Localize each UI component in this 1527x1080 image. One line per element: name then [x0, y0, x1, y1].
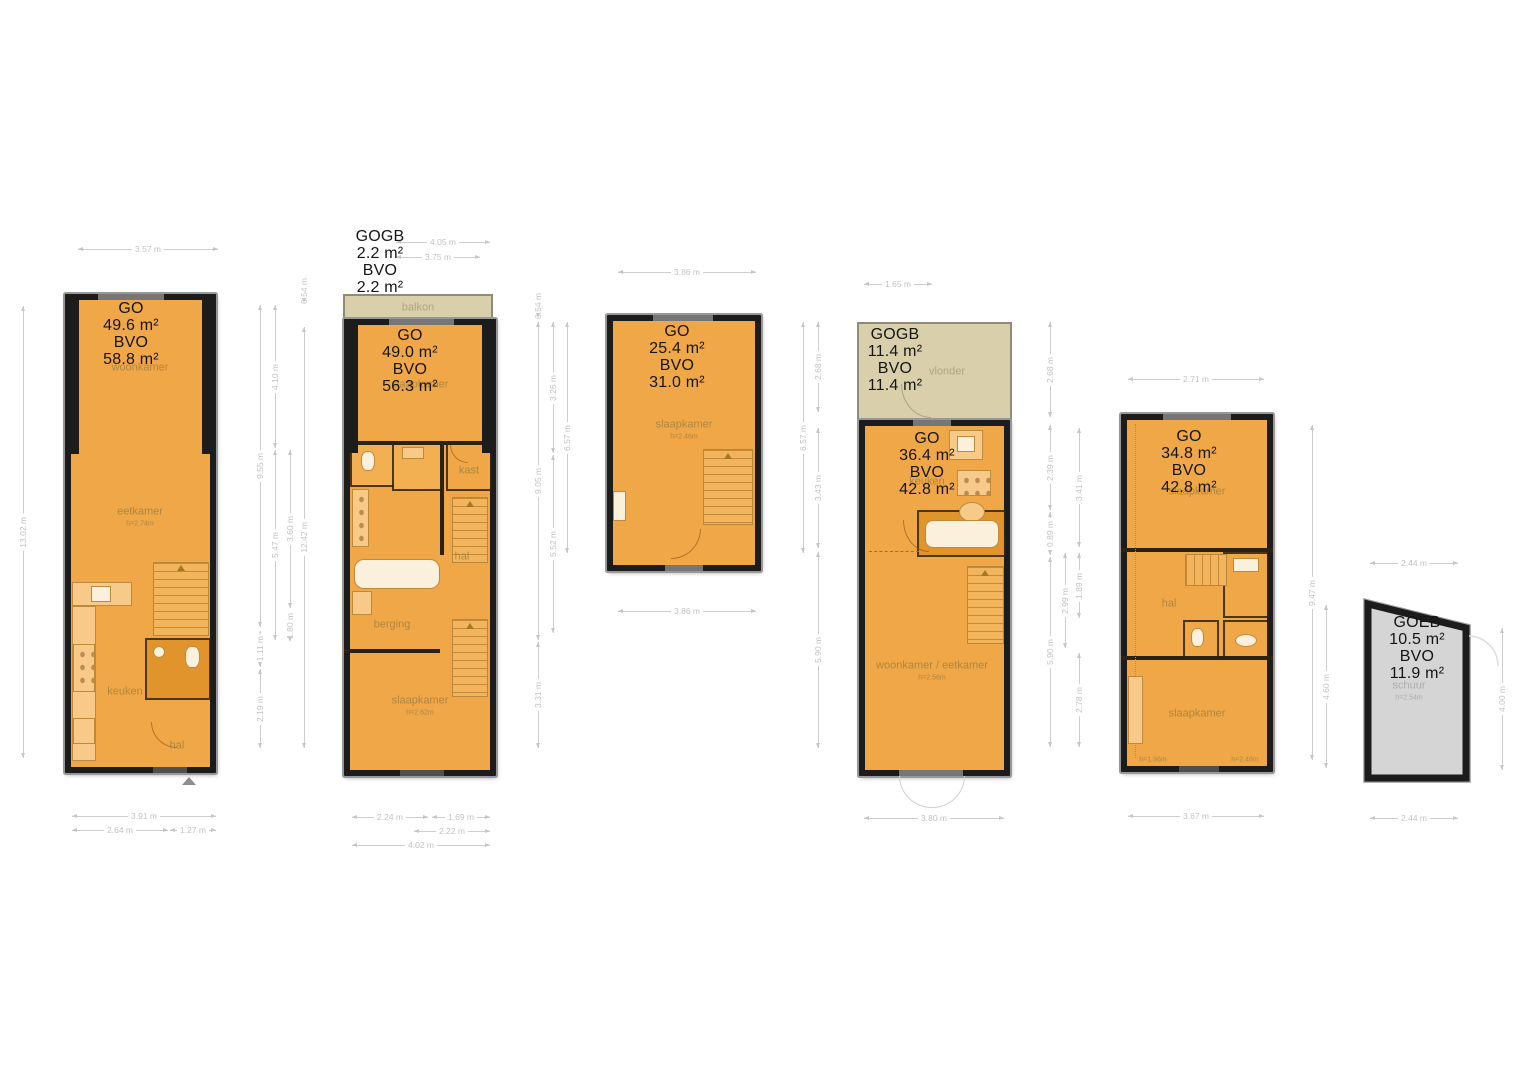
floorplan-4: GO36.4 m² BVO42.8 m² keuken woonkamer / … — [859, 420, 1010, 776]
wardrobe — [1128, 676, 1143, 744]
dim-p1-r7: 1.80 m — [284, 610, 296, 642]
room-label-slaapkamer-2: slaapkamerh=2.62m — [392, 696, 449, 719]
french-door-arc — [932, 776, 965, 808]
area-summary-6: GOEB10.5 m² BVO11.9 m² — [1374, 614, 1460, 682]
stairs-arrow-icon — [466, 623, 474, 629]
dim-p1-r1: 9.55 m — [254, 305, 266, 627]
boiler — [959, 502, 985, 522]
stairs-arrow-icon — [177, 565, 185, 571]
stove — [73, 644, 95, 692]
dim-p1-r3: 2.19 m — [254, 669, 266, 748]
area-summary-1: GO49.6 m² BVO58.8 m² — [77, 300, 185, 368]
dim-p4-r4: 5.90 m — [1044, 557, 1056, 747]
fridge — [73, 718, 95, 744]
dim-p5-r1: 9.47 m — [1306, 425, 1318, 760]
dim-p1-r9: 12.42 m — [298, 327, 310, 748]
dim-p5-bottom: 3.67 m — [1128, 810, 1264, 822]
inner-wall — [1121, 548, 1273, 552]
dim-p2-r5: 5.52 m — [547, 455, 559, 633]
dim-p4-r2: 2.39 m — [1044, 425, 1056, 510]
sink — [153, 646, 165, 658]
dim-p1-b3: 1.27 m — [170, 824, 216, 836]
balcony-door-segment — [389, 319, 454, 325]
room-label-schuur: schuurh=2.54m — [1392, 681, 1425, 704]
dim-p6-top: 2.44 m — [1370, 557, 1458, 569]
dim-p5-r2: 4.60 m — [1320, 605, 1332, 768]
dim-p2-b3: 2.22 m — [414, 825, 490, 837]
entrance-door-sill — [400, 770, 444, 776]
dim-p2-r1: 0.54 m — [532, 294, 544, 318]
room-label-balkon: balkon — [402, 303, 434, 314]
dim-p1-r5: 5.47 m — [269, 450, 281, 640]
room-label-slaapkamer-2: slaapkamer — [1169, 709, 1226, 720]
dim-p1-b1: 3.91 m — [72, 810, 216, 822]
stairs-icon — [452, 619, 488, 697]
bathtub — [354, 559, 440, 589]
floorplan-5: GO34.8 m² BVO42.8 m² slaapkamer hal slaa… — [1121, 414, 1273, 772]
deck-door-segment — [913, 420, 951, 426]
inner-wall — [1121, 656, 1273, 660]
sink — [1233, 558, 1259, 572]
room-label-hal: hal — [170, 741, 185, 752]
dim-p2-r4: 3.26 m — [547, 322, 559, 453]
toilet — [185, 646, 200, 668]
area-summary-4-deck: GOGB11.4 m² BVO11.4 m² — [860, 326, 930, 394]
area-summary-5: GO34.8 m² BVO42.8 m² — [1133, 428, 1245, 496]
dim-p1-r2: 1.11 m — [254, 631, 266, 667]
room-label-vlonder: vlonder — [929, 367, 965, 378]
inner-wall — [202, 294, 216, 454]
balcony: balkon — [345, 296, 491, 319]
toilet — [1235, 634, 1257, 647]
stairs-arrow-icon — [724, 453, 732, 459]
floorplan-1: GO49.6 m² BVO58.8 m² woonkamer eetkamerh… — [65, 294, 216, 773]
toilet — [361, 451, 375, 471]
area-summary-3: GO25.4 m² BVO31.0 m² — [621, 323, 733, 391]
room-label-woonkamer-eetkamer: woonkamer / eetkamerh=2.56m — [876, 661, 988, 684]
dim-p4-top: 1.65 m — [864, 278, 932, 290]
radiator — [613, 491, 626, 521]
dim-p1-left: 13.02 m — [17, 306, 29, 758]
bathtub — [925, 520, 999, 548]
dim-p5-top: 2.71 m — [1128, 373, 1264, 385]
dim-p2-b2: 1.69 m — [432, 811, 490, 823]
dashed-opening — [869, 551, 919, 552]
stairs-icon — [967, 566, 1004, 644]
room-label-eetkamer: eetkamerh=2.74m — [117, 507, 163, 530]
room-label-kast: kast — [459, 466, 479, 477]
door-segment — [665, 565, 703, 571]
floorplan-2: GO49.0 m² BVO56.3 m² slaapkamer kast hal… — [344, 319, 496, 776]
sink — [91, 586, 111, 602]
dim-p1-r4: 4.10 m — [269, 305, 281, 448]
dim-p4-r3: 0.89 m — [1044, 512, 1056, 555]
sink — [402, 447, 424, 459]
dim-p2-r6: 6.57 m — [561, 322, 573, 553]
floorplan-3: GO25.4 m² BVO31.0 m² slaapkamerh=2.46m — [607, 315, 761, 571]
toilet — [1191, 628, 1204, 647]
door-sill — [1179, 766, 1219, 772]
dim-p4-r6: 3.41 m — [1073, 428, 1085, 547]
height-label: h=2.48m — [1231, 755, 1258, 766]
dim-p3-r1: 6.57 m — [797, 322, 809, 553]
room-label-slaapkamer: slaapkamerh=2.46m — [656, 420, 713, 443]
stairs-icon — [1185, 554, 1227, 586]
stairs-arrow-icon — [981, 570, 989, 576]
floorplan-sheet: 3.57 m 13.02 m GO49.6 m² BVO58.8 m² woon… — [0, 0, 1527, 1080]
dim-p2-r2: 9.05 m — [532, 322, 544, 640]
room-label-hal: hal — [455, 552, 470, 563]
dim-p4-r5: 2.99 m — [1059, 553, 1071, 648]
entrance-door-sill — [153, 767, 187, 773]
dim-p4-r8: 2.78 m — [1073, 653, 1085, 747]
dim-p3-r4: 5.90 m — [812, 552, 824, 748]
inner-wall — [440, 445, 444, 555]
stairs-arrow-icon — [466, 501, 474, 507]
area-summary-2-balcony: GOGB2.2 m² BVO2.2 m² — [344, 228, 416, 296]
dim-p3-bottom: 3.86 m — [618, 605, 756, 617]
dim-p1-r8: 0.54 m — [298, 279, 310, 303]
stairs-icon — [153, 562, 209, 636]
room-label-berging: berging — [374, 620, 411, 631]
dim-p4-r7: 1.89 m — [1073, 553, 1085, 618]
dim-p3-r2: 2.68 m — [812, 322, 824, 412]
washing-machine — [352, 489, 369, 547]
inner-wall — [344, 649, 440, 653]
dim-p6-bottom: 2.44 m — [1370, 812, 1458, 824]
dim-p4-bottom: 3.80 m — [864, 812, 1004, 824]
dim-p4-r1: 2.68 m — [1044, 322, 1056, 417]
dim-p1-top: 3.57 m — [78, 243, 218, 255]
height-label: h=1.96m — [1139, 755, 1166, 766]
window-segment — [1163, 414, 1231, 420]
room-label-keuken: keuken — [107, 687, 142, 698]
french-door-arc — [899, 776, 932, 808]
area-summary-4: GO36.4 m² BVO42.8 m² — [871, 430, 983, 498]
inner-wall — [482, 319, 496, 453]
area-summary-2: GO49.0 m² BVO56.3 m² — [354, 327, 466, 395]
dim-p3-r3: 3.43 m — [812, 428, 824, 548]
stairs-icon — [703, 449, 753, 525]
room-label-hal: hal — [1162, 599, 1177, 610]
dim-p2-b1: 2.24 m — [352, 811, 428, 823]
dim-p3-top: 3.86 m — [618, 266, 756, 278]
washing-machine — [352, 591, 372, 615]
dim-p2-r3: 3.31 m — [532, 642, 544, 748]
window-segment — [653, 315, 713, 321]
entrance-marker — [182, 777, 196, 785]
dim-p6-right: 4.00 m — [1496, 628, 1508, 770]
dim-p2-b4: 4.02 m — [352, 839, 490, 851]
dim-p1-b2: 2.64 m — [72, 824, 168, 836]
dim-p1-r6: 3.60 m — [284, 450, 296, 608]
